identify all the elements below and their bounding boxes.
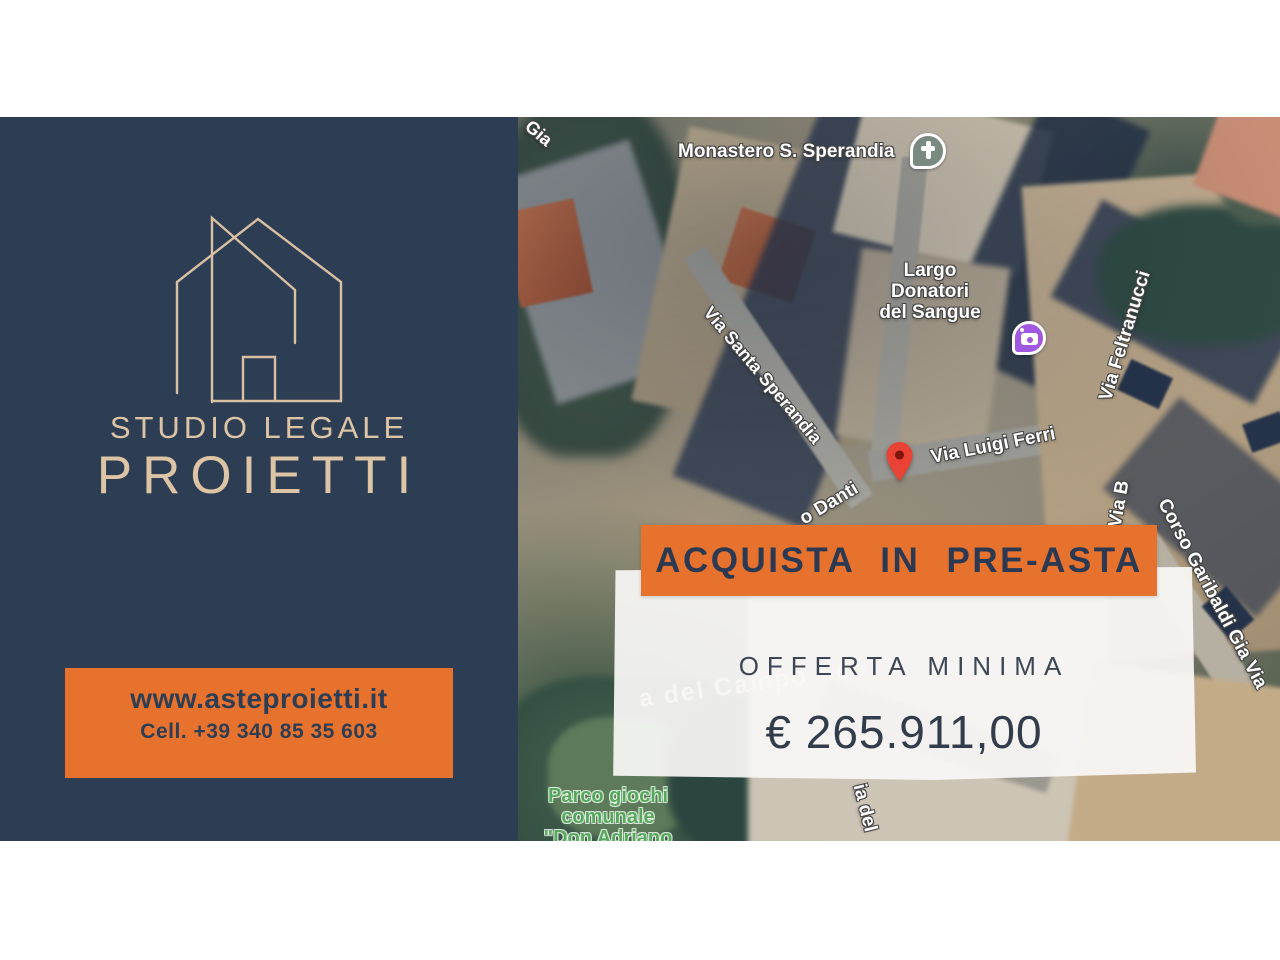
brand-name-line2: PROIETTI xyxy=(0,445,518,506)
camera-lens xyxy=(1027,337,1033,343)
brand-panel: STUDIO LEGALE PROIETTI www.asteproietti.… xyxy=(0,117,518,841)
church-pin-icon xyxy=(910,133,946,169)
contact-box: www.asteproietti.it Cell. +39 340 85 35 … xyxy=(65,668,453,778)
park-label-line3: "Don Adriano xyxy=(538,827,678,841)
camera-sparkle xyxy=(1020,328,1024,332)
photo-360-icon xyxy=(1012,321,1046,355)
cross-icon-bar xyxy=(921,146,935,151)
offer-card: OFFERTA MINIMA € 265.911,00 xyxy=(612,567,1196,780)
poi-label-largo-line1: Largo xyxy=(870,260,990,282)
location-pin-icon xyxy=(886,442,913,481)
brand-name-line1: STUDIO LEGALE xyxy=(0,410,518,446)
poi-label-largo-line3: del Sangue xyxy=(870,302,990,324)
house-logo-icon xyxy=(163,210,355,410)
satellite-map: a del Campo Sco Gia Monastero S. Sperand… xyxy=(518,117,1280,841)
website-url: www.asteproietti.it xyxy=(65,683,453,715)
park-label-line1: Parco giochi xyxy=(538,785,678,808)
pre-asta-banner: ACQUISTA IN PRE-ASTA xyxy=(641,525,1157,596)
poi-label-monastero: Monastero S. Sperandia xyxy=(678,141,894,163)
offer-label: OFFERTA MINIMA xyxy=(612,651,1196,682)
auction-flyer: STUDIO LEGALE PROIETTI www.asteproietti.… xyxy=(0,0,1280,960)
offer-amount: € 265.911,00 xyxy=(612,705,1196,759)
flyer-content: STUDIO LEGALE PROIETTI www.asteproietti.… xyxy=(0,117,1280,841)
phone-number: Cell. +39 340 85 35 603 xyxy=(65,720,453,744)
poi-label-largo-line2: Donatori xyxy=(870,281,990,303)
park-label-line2: comunale xyxy=(538,806,678,829)
